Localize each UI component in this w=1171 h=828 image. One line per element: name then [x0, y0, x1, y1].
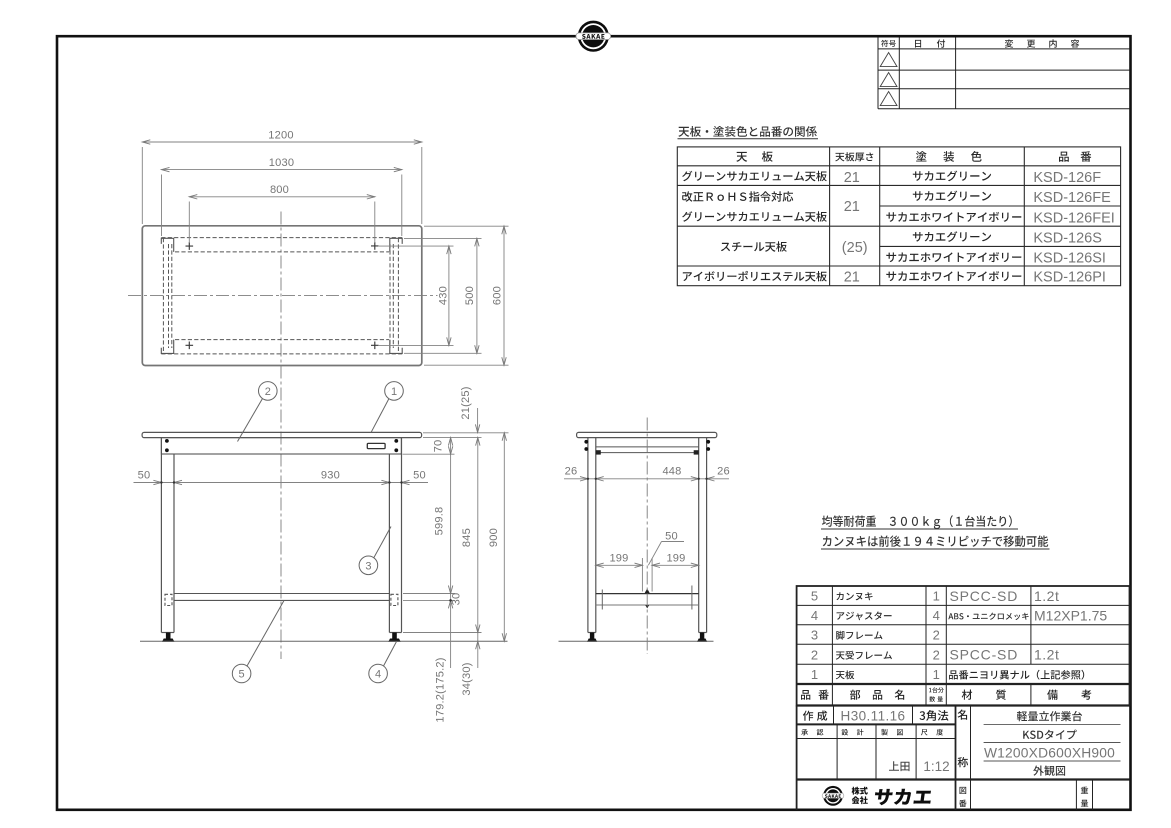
svg-text:26: 26 [717, 466, 730, 478]
svg-text:800: 800 [270, 184, 289, 196]
svg-text:30: 30 [451, 593, 463, 606]
svg-text:KSD-126SI: KSD-126SI [1033, 251, 1106, 267]
svg-text:930: 930 [321, 470, 340, 482]
svg-text:2: 2 [933, 647, 940, 662]
svg-text:21: 21 [844, 170, 860, 186]
svg-text:KSD-126S: KSD-126S [1033, 230, 1102, 246]
svg-text:430: 430 [437, 286, 449, 305]
svg-text:34(30): 34(30) [461, 662, 473, 695]
svg-text:SPCC-SD: SPCC-SD [950, 588, 1019, 604]
svg-text:2: 2 [933, 627, 940, 642]
svg-text:H30.11.16: H30.11.16 [841, 708, 906, 723]
svg-text:1.2t: 1.2t [1034, 647, 1059, 663]
svg-text:900: 900 [488, 528, 500, 547]
svg-text:1.2t: 1.2t [1034, 588, 1059, 604]
svg-text:4: 4 [375, 669, 381, 681]
svg-text:599.8: 599.8 [434, 507, 446, 536]
svg-text:5: 5 [811, 589, 818, 604]
svg-text:M12XP1.75: M12XP1.75 [1034, 607, 1107, 623]
svg-text:70: 70 [433, 440, 445, 453]
svg-text:199: 199 [609, 553, 628, 565]
svg-text:KSD-126FE: KSD-126FE [1033, 190, 1111, 206]
svg-text:179.2(175.2): 179.2(175.2) [435, 657, 447, 722]
svg-text:KSD-126FEI: KSD-126FEI [1033, 210, 1114, 226]
svg-text:1: 1 [811, 667, 818, 682]
svg-text:50: 50 [138, 470, 151, 482]
svg-text:KSD-126F: KSD-126F [1033, 170, 1101, 186]
svg-text:5: 5 [239, 669, 245, 681]
svg-text:199: 199 [666, 553, 685, 565]
svg-text:600: 600 [491, 286, 503, 305]
svg-text:1: 1 [933, 589, 940, 604]
svg-text:4: 4 [933, 608, 940, 623]
svg-text:845: 845 [461, 528, 473, 547]
svg-text:1200: 1200 [268, 129, 293, 141]
svg-text:1: 1 [933, 667, 940, 682]
svg-text:1030: 1030 [269, 157, 294, 169]
svg-text:SPCC-SD: SPCC-SD [950, 647, 1019, 663]
svg-text:2: 2 [811, 647, 818, 662]
svg-text:KSD-126PI: KSD-126PI [1033, 270, 1106, 286]
svg-text:3: 3 [365, 560, 371, 572]
svg-text:2: 2 [265, 386, 271, 398]
svg-text:W1200XD600XH900: W1200XD600XH900 [984, 745, 1115, 760]
svg-text:21: 21 [844, 270, 860, 286]
svg-text:50: 50 [665, 531, 678, 543]
svg-text:50: 50 [413, 470, 426, 482]
svg-text:448: 448 [662, 466, 681, 478]
svg-text:21(25): 21(25) [460, 386, 472, 419]
svg-text:(25): (25) [842, 240, 868, 256]
svg-text:500: 500 [464, 286, 476, 305]
svg-text:26: 26 [565, 466, 578, 478]
svg-text:1:12: 1:12 [923, 759, 949, 774]
svg-text:3: 3 [811, 627, 818, 642]
svg-text:4: 4 [811, 608, 818, 623]
svg-text:1: 1 [391, 386, 397, 398]
svg-text:21: 21 [844, 199, 860, 215]
